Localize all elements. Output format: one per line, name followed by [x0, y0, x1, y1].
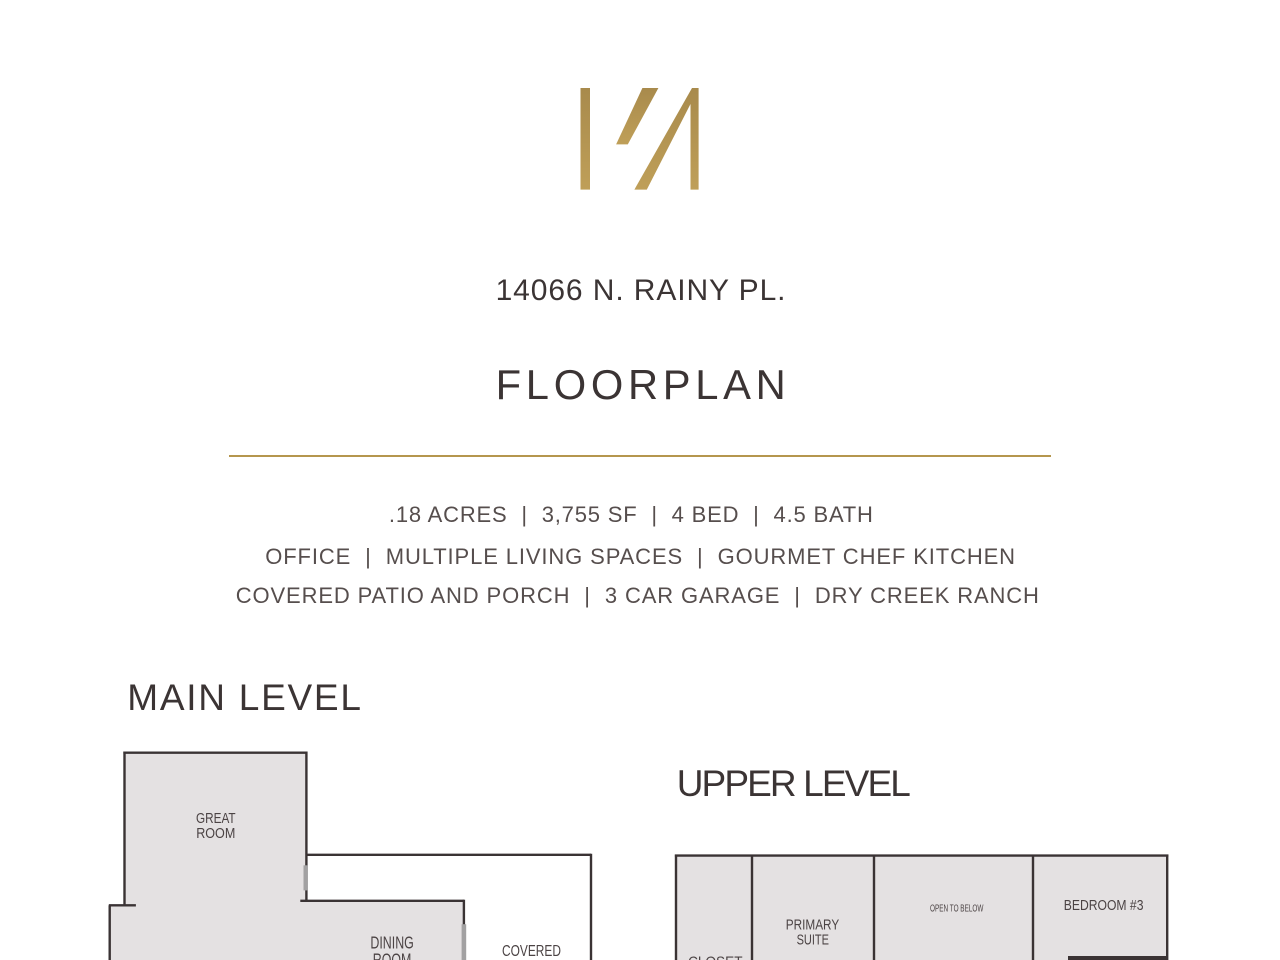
svg-text:BEDROOM #3: BEDROOM #3 — [1064, 897, 1144, 914]
svg-text:ROOM: ROOM — [373, 950, 412, 960]
svg-text:ROOM: ROOM — [196, 825, 235, 842]
svg-text:COVERED: COVERED — [502, 943, 561, 960]
svg-text:OPEN TO BELOW: OPEN TO BELOW — [930, 903, 984, 914]
svg-text:SUITE: SUITE — [797, 933, 829, 949]
svg-text:CLOSET: CLOSET — [688, 953, 742, 960]
svg-text:PRIMARY: PRIMARY — [786, 918, 840, 934]
